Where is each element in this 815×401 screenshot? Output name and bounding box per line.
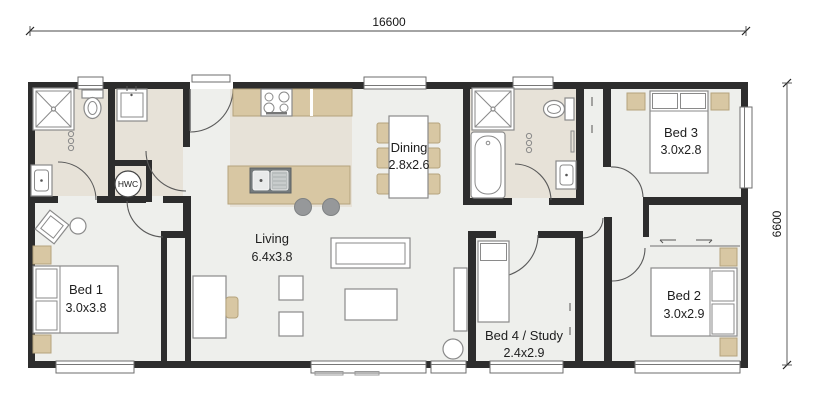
window-top-ensuite bbox=[78, 77, 103, 89]
wall-bed3-jog bbox=[643, 197, 649, 237]
counter-divider bbox=[310, 89, 313, 116]
entry-porch-step bbox=[192, 75, 230, 82]
dimension-height: 6600 bbox=[770, 79, 792, 369]
bed4-name: Bed 4 / Study bbox=[485, 328, 564, 343]
hot-water-cylinder: HWC bbox=[115, 171, 141, 197]
bed1-size: 3.0x3.8 bbox=[65, 301, 106, 315]
entry-door-opening bbox=[190, 82, 233, 89]
living-tv-unit bbox=[454, 268, 467, 331]
window-right-bed3 bbox=[740, 107, 752, 188]
wall-bed4-top-a bbox=[468, 231, 496, 238]
wall-bed4-top-b bbox=[538, 231, 583, 238]
living-name: Living bbox=[255, 231, 289, 246]
wall-bed3-bottom bbox=[643, 197, 741, 205]
living-sofa bbox=[331, 238, 410, 268]
bed2-name: Bed 2 bbox=[667, 288, 701, 303]
stove bbox=[261, 89, 292, 116]
bed3-size: 3.0x2.8 bbox=[660, 143, 701, 157]
dining-chair-1 bbox=[377, 123, 390, 143]
window-top-bathroom bbox=[513, 77, 553, 89]
window-bottom-bed4 bbox=[490, 361, 563, 373]
floor-plan-svg: HWC bbox=[0, 0, 815, 401]
wall-bed2-left bbox=[604, 217, 612, 368]
toilet-bathroom bbox=[544, 98, 575, 120]
wall-bed1-robe-left bbox=[161, 231, 167, 368]
bed2-side-table-bottom bbox=[720, 338, 737, 356]
wall-bathroom-bottom-a bbox=[463, 198, 512, 205]
bed1-side-table-top bbox=[33, 246, 51, 264]
shower-bathroom bbox=[472, 88, 514, 130]
dining-table bbox=[389, 116, 428, 198]
wall-bed1-robe-right bbox=[185, 231, 191, 368]
bed3-side-table-right bbox=[711, 93, 729, 110]
living-ottoman-1 bbox=[279, 276, 303, 300]
dimension-width: 16600 bbox=[26, 15, 750, 36]
living-round-table bbox=[443, 339, 463, 359]
wall-bathroom-right bbox=[576, 89, 584, 205]
bathtub bbox=[471, 132, 505, 198]
window-bottom-bed2 bbox=[635, 361, 740, 373]
bed4-size: 2.4x2.9 bbox=[503, 346, 544, 360]
vanity-bathroom bbox=[556, 161, 576, 189]
living-ottoman-2 bbox=[279, 312, 303, 336]
bed1-round-table bbox=[70, 218, 86, 234]
bed3-name: Bed 3 bbox=[664, 125, 698, 140]
wall-hwc-top bbox=[108, 160, 152, 166]
wall-laundry-entry bbox=[183, 89, 190, 147]
stove-controls bbox=[266, 112, 287, 115]
bed2-size: 3.0x2.9 bbox=[663, 307, 704, 321]
dining-chair-4 bbox=[427, 123, 440, 143]
dining-size: 2.8x2.6 bbox=[388, 158, 429, 172]
toilet-ensuite bbox=[82, 90, 103, 119]
window-bottom-living-b bbox=[431, 361, 466, 373]
bar-stool-1 bbox=[295, 199, 312, 216]
kitchen-sink bbox=[250, 168, 291, 193]
laundry-tub bbox=[117, 86, 147, 121]
wall-bed4-right bbox=[575, 231, 583, 368]
shower-ensuite bbox=[33, 88, 74, 130]
bed3-side-table-left bbox=[627, 93, 645, 110]
living-coffee-table bbox=[345, 289, 397, 320]
bed1-side-table-bottom bbox=[33, 335, 51, 353]
wall-bed4-left bbox=[468, 231, 476, 368]
height-dimension-label: 6600 bbox=[770, 210, 784, 237]
wall-ensuite-laundry bbox=[108, 89, 115, 196]
bed1-bed bbox=[33, 266, 118, 333]
vanity-ensuite bbox=[31, 165, 52, 196]
wall-hall-b bbox=[97, 196, 146, 203]
bed1-name: Bed 1 bbox=[69, 282, 103, 297]
living-desk bbox=[193, 276, 226, 338]
window-top-dining bbox=[364, 77, 426, 89]
dining-chair-6 bbox=[427, 174, 440, 194]
window-bottom-bed1 bbox=[56, 361, 134, 373]
dining-name: Dining bbox=[391, 140, 428, 155]
living-size: 6.4x3.8 bbox=[251, 250, 292, 264]
bed2-side-table-top bbox=[720, 248, 737, 266]
width-dimension-label: 16600 bbox=[372, 15, 406, 29]
bed4-bed bbox=[478, 241, 509, 322]
dining-chair-3 bbox=[377, 174, 390, 194]
hwc-label: HWC bbox=[118, 179, 138, 189]
bar-stool-2 bbox=[323, 199, 340, 216]
wall-bathroom-bottom-b bbox=[549, 198, 584, 205]
wall-hall-a bbox=[28, 196, 58, 203]
living-desk-chair bbox=[226, 297, 238, 318]
wall-bathroom-left bbox=[463, 89, 470, 205]
wall-bed1-robe-top bbox=[161, 231, 191, 238]
floor-plan-canvas: HWC bbox=[0, 0, 815, 401]
dining: Dining 2.8x2.6 bbox=[377, 116, 440, 198]
wall-bed3-left bbox=[603, 89, 611, 167]
